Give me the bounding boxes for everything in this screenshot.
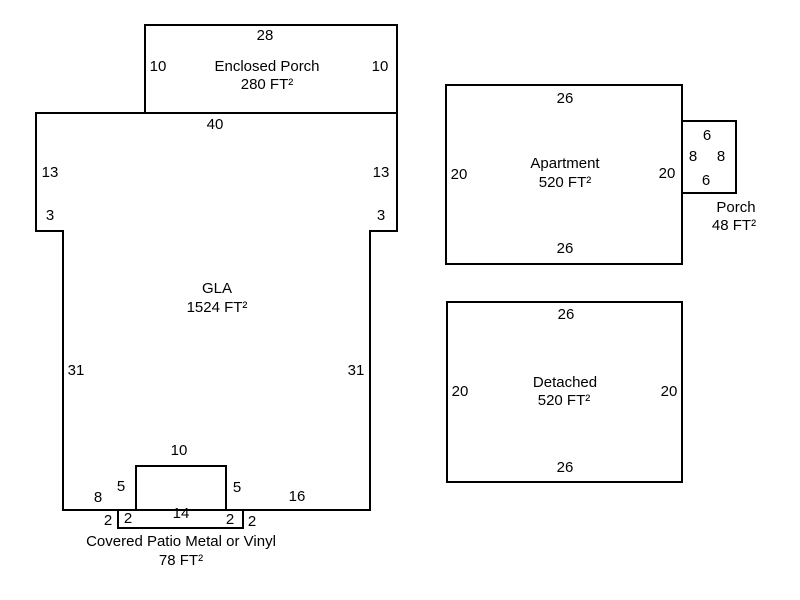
covered-patio-dim-right-inner: 2 — [226, 511, 234, 529]
apartment-porch-dim-right: 8 — [717, 148, 725, 166]
gla-dim-bottom-right: 16 — [289, 488, 306, 506]
enclosed-porch-dim-left: 10 — [150, 58, 167, 76]
detached-dim-bottom: 26 — [557, 459, 574, 477]
gla-area: 1524 FT² — [187, 299, 248, 317]
gla-dim-right-step: 3 — [377, 207, 385, 225]
covered-patio-dim-left-inner: 2 — [124, 510, 132, 528]
enclosed-porch-title: Enclosed Porch — [214, 58, 319, 76]
covered-patio-dim-left-outer: 2 — [104, 512, 112, 530]
enclosed-porch-dim-top: 28 — [257, 27, 274, 45]
gla-dim-right-upper: 13 — [373, 164, 390, 182]
apartment-dim-left: 20 — [451, 166, 468, 184]
covered-patio-area: 78 FT² — [159, 552, 203, 570]
covered-patio-dim-left-upper: 5 — [117, 478, 125, 496]
gla-title: GLA — [202, 280, 232, 298]
apartment-dim-bottom: 26 — [557, 240, 574, 258]
gla-dim-bottom-left: 8 — [94, 489, 102, 507]
apartment-dim-top: 26 — [557, 90, 574, 108]
floorplan-sketch: 28 10 Enclosed Porch 280 FT² 10 40 13 13… — [0, 0, 800, 600]
apartment-area: 520 FT² — [539, 174, 592, 192]
covered-patio-dim-top: 10 — [171, 442, 188, 460]
gla-dim-left-step: 3 — [46, 207, 54, 225]
apartment-porch-dim-top: 6 — [703, 127, 711, 145]
enclosed-porch-area: 280 FT² — [241, 76, 294, 94]
enclosed-porch-dim-right: 10 — [372, 58, 389, 76]
covered-patio-dim-bottom: 14 — [173, 505, 190, 523]
gla-dim-left-upper: 13 — [42, 164, 59, 182]
detached-dim-left: 20 — [452, 383, 469, 401]
apartment-dim-right: 20 — [659, 165, 676, 183]
covered-patio-dim-right-upper: 5 — [233, 479, 241, 497]
covered-patio-dim-right-outer: 2 — [248, 513, 256, 531]
detached-dim-right: 20 — [661, 383, 678, 401]
apartment-title: Apartment — [530, 155, 599, 173]
detached-dim-top: 26 — [558, 306, 575, 324]
gla-dim-right-lower: 31 — [348, 362, 365, 380]
detached-title: Detached — [533, 374, 597, 392]
apartment-porch-dim-bottom: 6 — [702, 172, 710, 190]
sketch-outlines — [0, 0, 800, 600]
detached-area: 520 FT² — [538, 392, 591, 410]
covered-patio-title: Covered Patio Metal or Vinyl — [86, 533, 276, 551]
gla-dim-left-lower: 31 — [68, 362, 85, 380]
apartment-porch-title: Porch — [716, 199, 755, 217]
apartment-porch-dim-left: 8 — [689, 148, 697, 166]
enclosed-porch-dim-bottom: 40 — [207, 116, 224, 134]
apartment-porch-area: 48 FT² — [712, 217, 756, 235]
